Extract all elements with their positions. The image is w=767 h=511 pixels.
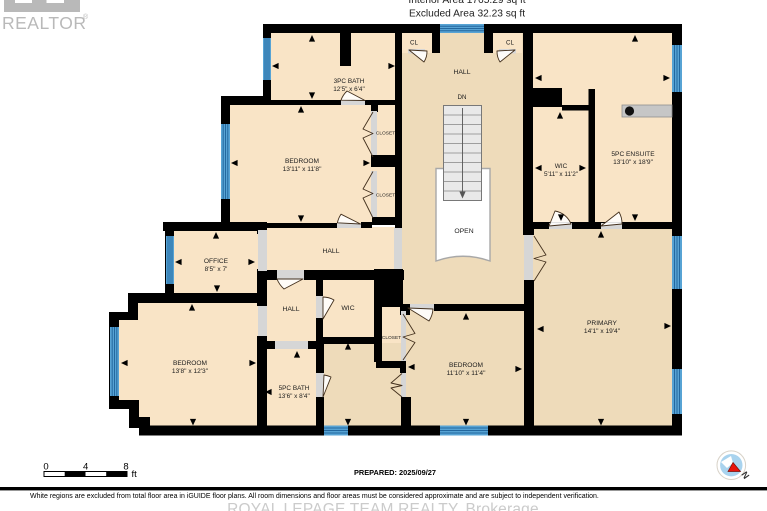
svg-text:BEDROOM: BEDROOM xyxy=(173,360,207,367)
svg-text:OFFICE: OFFICE xyxy=(204,258,229,265)
svg-text:CLOSET: CLOSET xyxy=(382,335,401,341)
svg-text:13'8" x 12'3": 13'8" x 12'3" xyxy=(172,368,209,375)
svg-text:®: ® xyxy=(83,13,89,21)
svg-text:4: 4 xyxy=(83,462,88,473)
svg-text:ft: ft xyxy=(132,469,138,480)
svg-text:8'5" x 7': 8'5" x 7' xyxy=(205,266,228,273)
svg-text:5PC ENSUITE: 5PC ENSUITE xyxy=(611,151,655,158)
svg-text:13'11" x 11'8": 13'11" x 11'8" xyxy=(283,166,323,173)
svg-text:HALL: HALL xyxy=(282,306,299,313)
svg-text:DN: DN xyxy=(458,94,467,101)
svg-text:White regions are excluded fro: White regions are excluded from total fl… xyxy=(30,493,599,500)
svg-text:13'6" x 8'4": 13'6" x 8'4" xyxy=(278,393,310,400)
svg-text:HALL: HALL xyxy=(322,248,339,255)
svg-text:CL: CL xyxy=(410,40,418,47)
svg-text:HALL: HALL xyxy=(453,69,470,76)
svg-text:BEDROOM: BEDROOM xyxy=(449,362,483,369)
svg-text:REALTOR: REALTOR xyxy=(2,13,87,33)
svg-text:PRIMARY: PRIMARY xyxy=(587,320,618,327)
svg-text:BEDROOM: BEDROOM xyxy=(285,158,319,165)
svg-text:0: 0 xyxy=(43,462,48,473)
svg-text:ROYAL LEPAGE TEAM REALTY, Brok: ROYAL LEPAGE TEAM REALTY, Brokerage xyxy=(227,501,539,511)
svg-text:WIC: WIC xyxy=(341,305,354,312)
svg-text:5PC BATH: 5PC BATH xyxy=(279,385,310,392)
svg-text:13'10" x 18'9": 13'10" x 18'9" xyxy=(613,159,653,166)
svg-text:12'5" x 6'4": 12'5" x 6'4" xyxy=(333,86,365,93)
svg-text:8: 8 xyxy=(123,462,128,473)
svg-text:WIC: WIC xyxy=(555,163,568,170)
svg-text:OPEN: OPEN xyxy=(454,228,473,235)
svg-text:5'11" x 11'2": 5'11" x 11'2" xyxy=(544,171,578,178)
svg-text:CLOSET: CLOSET xyxy=(376,131,395,137)
svg-text:CL: CL xyxy=(506,40,514,47)
svg-text:Interior Area 1765.29 sq ft: Interior Area 1765.29 sq ft xyxy=(408,0,525,6)
svg-text:CLOSET: CLOSET xyxy=(376,193,395,199)
svg-text:3PC BATH: 3PC BATH xyxy=(334,78,365,85)
svg-text:PREPARED: 2025/09/27: PREPARED: 2025/09/27 xyxy=(354,468,436,477)
svg-text:Excluded Area 32.23 sq ft: Excluded Area 32.23 sq ft xyxy=(409,9,525,20)
svg-text:14'1" x 19'4": 14'1" x 19'4" xyxy=(584,328,621,335)
svg-text:11'10" x 11'4": 11'10" x 11'4" xyxy=(447,370,487,377)
